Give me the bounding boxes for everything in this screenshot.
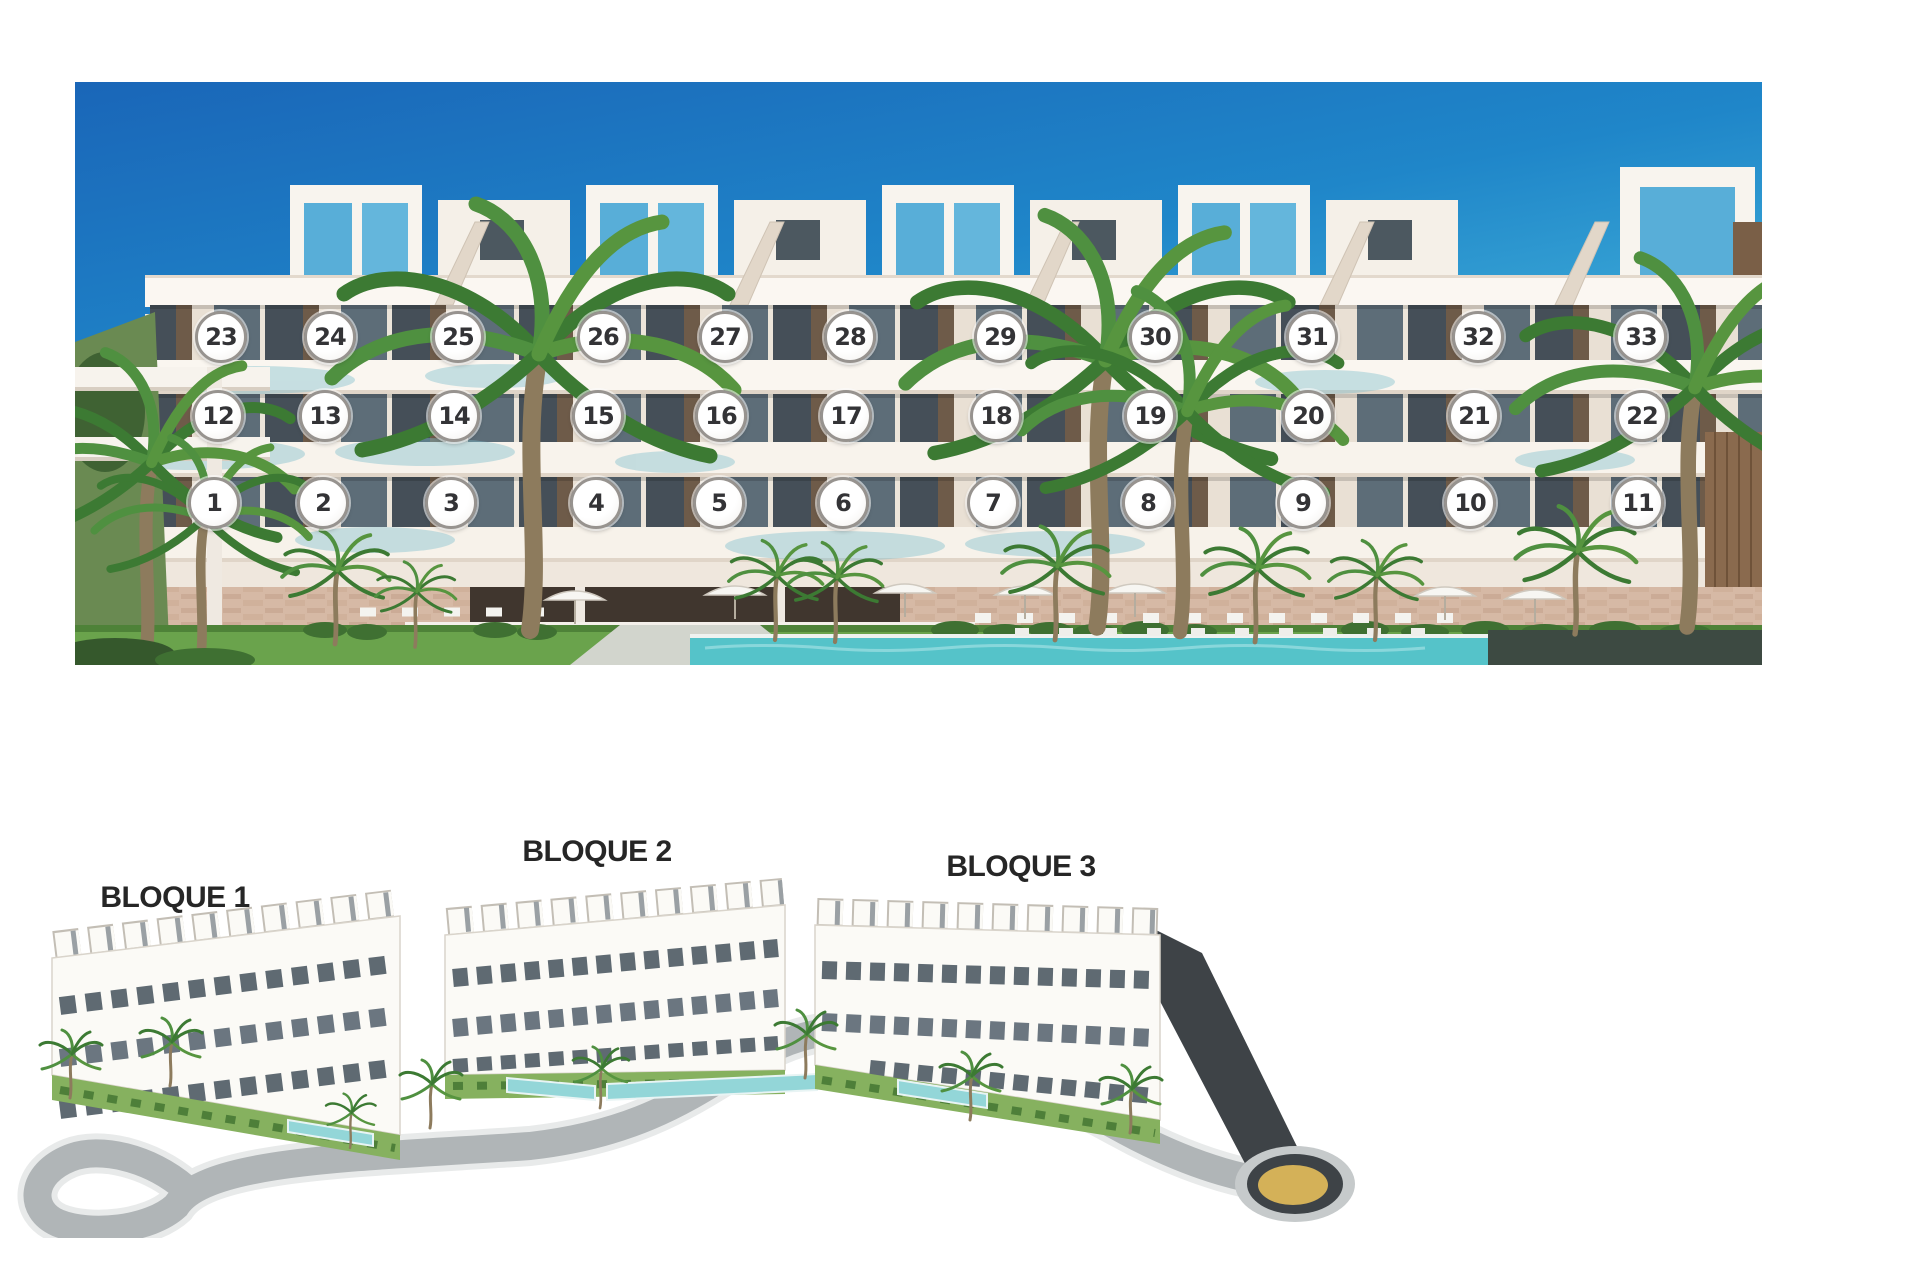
- building-front-render: [75, 82, 1762, 665]
- building-front-photo: [75, 82, 1762, 665]
- block-1-label: BLOQUE 1: [100, 881, 249, 915]
- block-2-building: [445, 892, 817, 1100]
- real-estate-render-page: 2324252627282930313233121314151617181920…: [0, 0, 1920, 1280]
- block-1-building: [52, 903, 400, 1160]
- roundabout: [1235, 1146, 1355, 1222]
- block-3-label: BLOQUE 3: [946, 850, 1095, 884]
- roundabout-center: [1258, 1165, 1328, 1205]
- dark-band: [1488, 630, 1762, 665]
- block-3-building: [815, 912, 1160, 1144]
- block-2-label: BLOQUE 2: [522, 835, 671, 869]
